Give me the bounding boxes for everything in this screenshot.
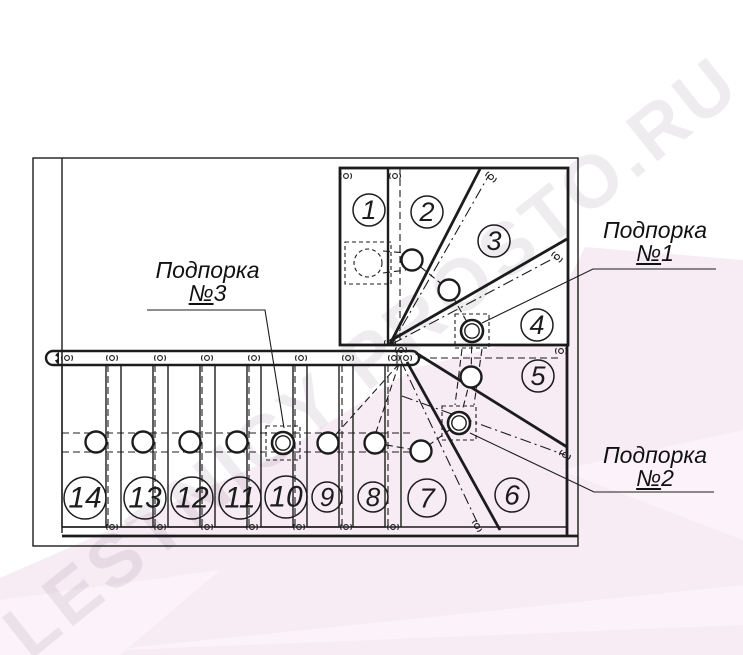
svg-text:1: 1 — [361, 195, 376, 225]
fastener-icon — [155, 355, 166, 361]
step-marker-10: 10 — [265, 476, 307, 518]
fastener-icon — [390, 173, 401, 179]
fastener-icon — [485, 171, 497, 182]
svg-text:10: 10 — [269, 481, 303, 514]
support-label-1: Подпорка №1 — [590, 219, 720, 266]
svg-text:4: 4 — [529, 310, 544, 340]
support-label-2: Подпорка №2 — [590, 444, 720, 491]
stair-plan-drawing: LESTNICY PROSTO.RU — [0, 0, 743, 655]
step-marker-8: 8 — [358, 482, 388, 512]
support-label-2-number: №2 — [590, 467, 720, 490]
plan-linework: 1 2 3 4 5 6 7 8 9 10 11 12 13 14 — [0, 0, 743, 655]
support-label-1-number: №1 — [590, 242, 720, 265]
svg-text:14: 14 — [68, 482, 101, 515]
step-marker-14: 14 — [64, 477, 106, 519]
handrail-beam — [46, 351, 562, 365]
fastener-icon — [296, 355, 307, 361]
step-marker-7: 7 — [408, 479, 446, 517]
step-marker-13: 13 — [124, 477, 166, 519]
fastener-icon — [249, 355, 260, 361]
svg-text:7: 7 — [419, 483, 436, 514]
step-marker-3: 3 — [478, 225, 510, 257]
support-label-3: Подпорка №3 — [145, 259, 270, 306]
svg-text:8: 8 — [366, 482, 381, 512]
step-marker-9: 9 — [312, 482, 342, 512]
fastener-icon — [551, 251, 563, 262]
support-post-1 — [461, 320, 483, 342]
fastener-icon — [202, 355, 213, 361]
support-label-1-name: Подпорка — [590, 219, 720, 242]
fastener-icon — [389, 355, 400, 361]
support-label-3-name: Подпорка — [145, 259, 270, 282]
svg-text:9: 9 — [320, 482, 334, 512]
svg-text:2: 2 — [418, 197, 434, 227]
support-post-3 — [272, 432, 294, 454]
svg-text:12: 12 — [175, 482, 209, 515]
fastener-icon — [556, 348, 567, 354]
step-marker-6: 6 — [495, 478, 529, 512]
support-label-3-number: №3 — [145, 282, 270, 305]
fastener-icon — [343, 355, 354, 361]
fastener-icon — [341, 173, 352, 179]
svg-text:11: 11 — [224, 482, 255, 515]
support-post-2 — [448, 412, 470, 434]
step-marker-1: 1 — [353, 194, 385, 226]
svg-text:3: 3 — [486, 226, 501, 256]
step-marker-5: 5 — [522, 360, 554, 392]
step-marker-11: 11 — [219, 477, 261, 519]
step-markers: 1 2 3 4 5 6 7 8 9 10 11 12 13 14 — [64, 194, 554, 519]
step-marker-2: 2 — [411, 196, 443, 228]
step-marker-12: 12 — [171, 477, 213, 519]
fastener-icon — [107, 355, 118, 361]
step-marker-4: 4 — [521, 309, 553, 341]
fastener-icon — [62, 355, 73, 361]
fastener-icon — [401, 355, 412, 361]
svg-text:6: 6 — [504, 480, 520, 511]
svg-text:13: 13 — [128, 482, 162, 515]
svg-text:5: 5 — [530, 361, 546, 391]
support-label-2-name: Подпорка — [590, 444, 720, 467]
